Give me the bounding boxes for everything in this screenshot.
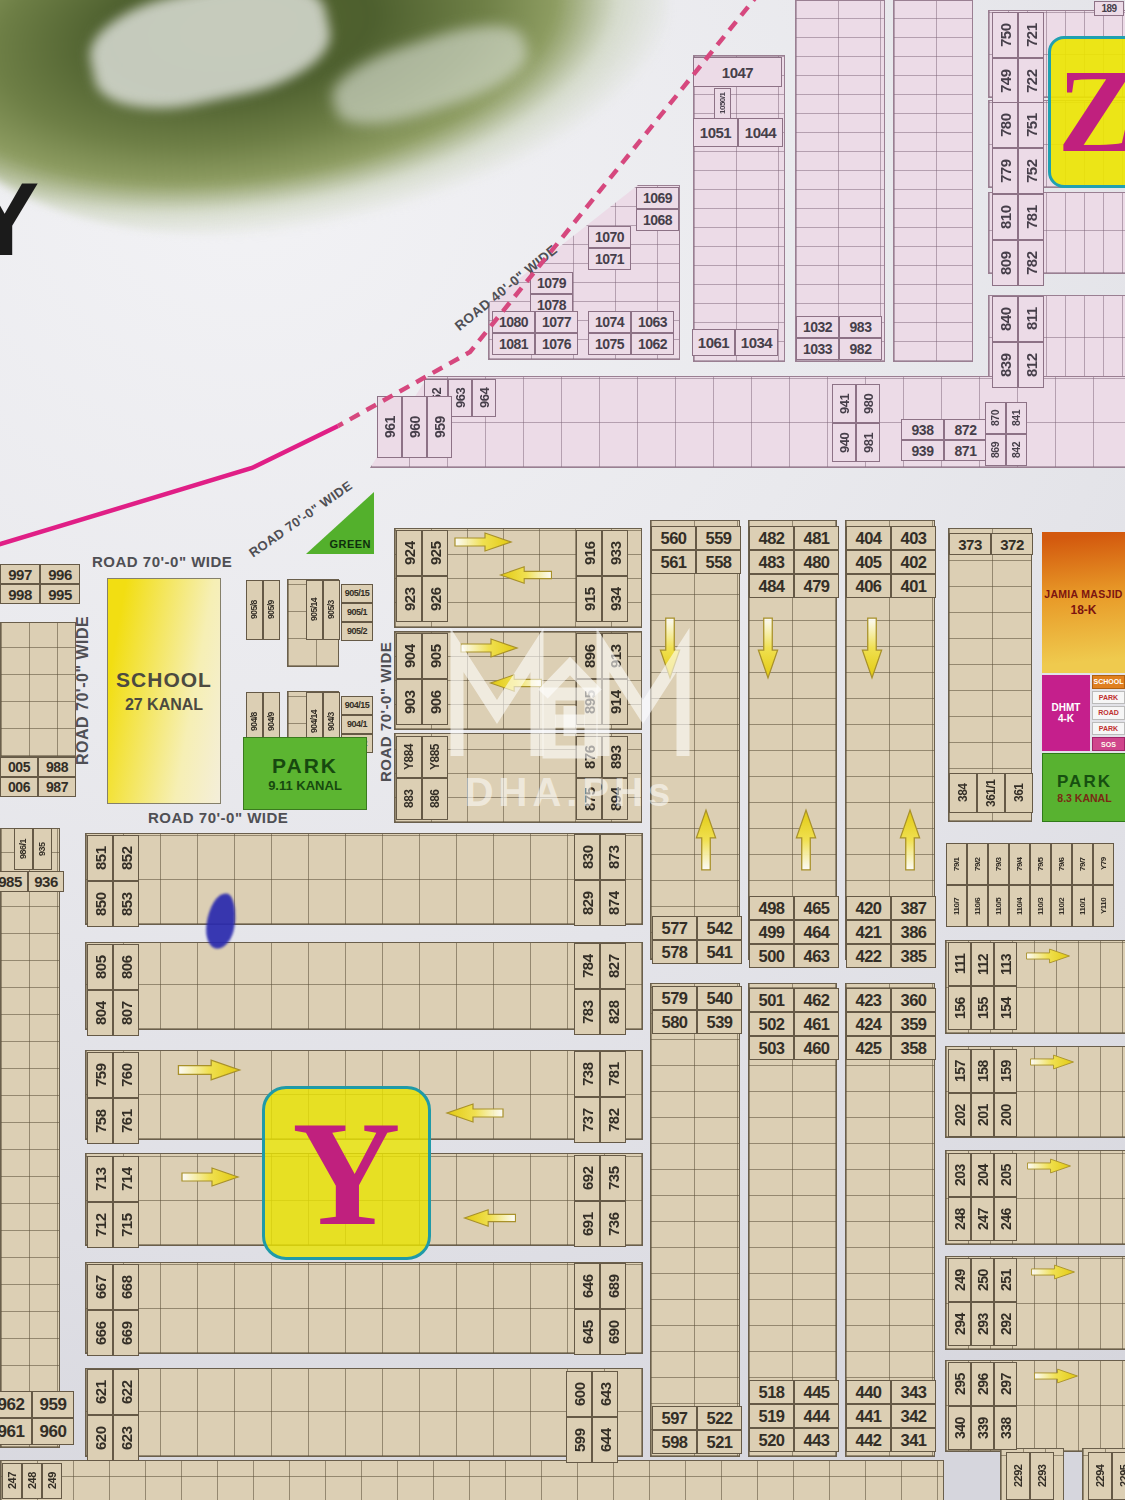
plot-group: 905/15905/1905/2: [341, 584, 373, 641]
plot-number: SOS: [1092, 737, 1125, 751]
plot-number: 841: [1006, 402, 1027, 434]
plot-number: 159: [994, 1049, 1017, 1093]
plot-number: 201: [971, 1093, 994, 1137]
plot-group: 420387421386422385: [846, 896, 936, 968]
plot-number: 112: [971, 942, 994, 986]
plot-number: 896: [576, 633, 602, 679]
plot-number: 372: [991, 533, 1033, 555]
plot-number: 828: [600, 989, 626, 1035]
plot-number: 810: [992, 194, 1018, 240]
plot-number: 751: [1018, 102, 1044, 148]
dhmt-size-label: 4-K: [1058, 713, 1074, 724]
plot-number: 752: [1018, 148, 1044, 194]
plot-group: 189: [1094, 1, 1124, 16]
plot-group: 780751779752: [992, 102, 1044, 194]
plot-number: 983: [839, 316, 882, 338]
plot-number: 296: [971, 1362, 994, 1406]
plot-number: 358: [891, 1036, 936, 1060]
plot-number: 750: [992, 12, 1018, 58]
plot-group: 916933915934: [576, 530, 628, 622]
plot-group: 905/14905/3: [306, 580, 340, 640]
plot-number: 842: [1006, 434, 1027, 466]
plot-number: 905/1: [341, 603, 373, 622]
plot-number: 294: [948, 1302, 971, 1346]
plot-number: 926: [422, 576, 448, 622]
plot-number: 905/8: [246, 580, 263, 640]
plot-number: 962: [0, 1391, 32, 1418]
plot-group: 784827783828: [574, 943, 626, 1035]
plot-group: 10701071: [588, 226, 631, 270]
plot-number: 341: [891, 1428, 936, 1452]
plot-number: 827: [600, 943, 626, 989]
plot-number: 422: [846, 944, 891, 968]
plot-number: 110/7: [946, 885, 967, 927]
plot-number: 420: [846, 896, 891, 920]
plot-group: 985936: [0, 871, 64, 892]
plot-number: 779: [992, 148, 1018, 194]
plot-number: 894: [602, 778, 628, 820]
plot-group: 10329831033982: [796, 316, 882, 360]
amenity-bars: SCHOOLPARKROADPARKSOS: [1092, 675, 1125, 751]
plot-number: 340: [948, 1406, 971, 1450]
plot-number: 964: [472, 379, 496, 417]
plot-number: 2293: [1030, 1452, 1054, 1500]
plot-number: 840: [992, 296, 1018, 342]
plot-number: 869: [985, 434, 1006, 466]
plot-number: 782: [600, 1097, 626, 1143]
dhmt-label: DHMT: [1052, 702, 1081, 713]
plot-number: 1034: [735, 329, 778, 356]
plot-group: 404403405402406401: [846, 526, 936, 598]
plot-group: 997996998995: [0, 564, 80, 604]
direction-arrow-icon: [794, 808, 818, 872]
plot-number: 111: [948, 942, 971, 986]
direction-arrow-icon: [1026, 1157, 1072, 1175]
plot-group: 840811839812: [992, 296, 1044, 388]
plot-number: 1080: [492, 311, 535, 333]
plot-number: 202: [948, 1093, 971, 1137]
plot-group: 005988006987: [0, 757, 76, 797]
plot-number: 667: [87, 1264, 113, 1310]
plot-grid: [85, 942, 643, 1030]
plot-number: 005: [0, 757, 38, 777]
plot-number: 934: [602, 576, 628, 622]
plot-number: 715: [113, 1202, 139, 1248]
plot-number: 599: [566, 1417, 592, 1463]
plot-number: 154: [994, 986, 1017, 1030]
plot-number: 935: [33, 828, 52, 870]
plot-number: 247: [971, 1197, 994, 1241]
direction-arrow-icon: [860, 616, 884, 680]
dha-plot-map: Y 1047 1050/1 10511044 10691068 10701071…: [0, 0, 1125, 1500]
plot-number: 905/2: [341, 622, 373, 641]
plot-number: 387: [891, 896, 936, 920]
plot-group: 805806804807: [87, 944, 139, 1036]
plot-group: 560559561558: [651, 526, 741, 574]
plot-number: 738: [574, 1051, 600, 1097]
plot-number: 423: [846, 988, 891, 1012]
plot-number: 924: [396, 530, 422, 576]
plot-number: 1047: [693, 57, 782, 87]
park-block: PARK 9.11 KANAL: [243, 737, 367, 810]
plot-number: SCHOOL: [1092, 675, 1125, 689]
plot-number: 578: [652, 940, 697, 964]
plot-number: 806: [113, 944, 139, 990]
plot-number: 539: [697, 1010, 742, 1034]
plot-number: 462: [794, 988, 839, 1012]
plot-number: Y884: [396, 736, 422, 778]
plot-number: 913: [602, 633, 628, 679]
plot-number: 1044: [738, 118, 783, 147]
plot-group: 498465499464500463: [749, 896, 839, 968]
plot-group: 111112113156155154: [948, 942, 1017, 1030]
plot-group: 621622620623: [87, 1369, 139, 1461]
direction-arrow-icon: [444, 1102, 506, 1124]
plot-number: 782: [1018, 240, 1044, 286]
plot-number: 906: [422, 679, 448, 725]
plot-number: 113: [994, 942, 1017, 986]
plot-group: 597522598521: [652, 1406, 742, 1454]
plot-number: Y79: [1093, 843, 1114, 885]
plot-number: 783: [574, 989, 600, 1035]
plot-number: 110/6: [967, 885, 988, 927]
plot-group: 157158159202201200: [948, 1049, 1017, 1137]
plot-number: 805: [87, 944, 113, 990]
plot-group: 22922293: [1006, 1452, 1054, 1500]
sector-y-marker: Y: [262, 1086, 431, 1260]
plot-number: 851: [87, 835, 113, 881]
plot-group: 600643599644: [566, 1371, 618, 1463]
plot-group: 759760758761: [87, 1052, 139, 1144]
plot-number: 110/4: [1009, 885, 1030, 927]
direction-arrow-icon: [458, 637, 520, 659]
plot-group: 961960959: [377, 396, 452, 458]
plot-number: Y885: [422, 736, 448, 778]
plot-number: 714: [113, 1156, 139, 1202]
plot-number: 440: [846, 1380, 891, 1404]
plot-number: 248: [22, 1463, 42, 1499]
plot-number: 247: [2, 1463, 22, 1499]
plot-number: 386: [891, 920, 936, 944]
plot-number: 250: [971, 1258, 994, 1302]
plot-number: 904/1: [341, 715, 373, 734]
plot-number: 959: [32, 1391, 74, 1418]
plot-number: ROAD: [1092, 706, 1125, 720]
plot-grid: [0, 828, 60, 1448]
plot-number: 961: [0, 1418, 32, 1445]
direction-arrow-icon: [756, 616, 780, 680]
plot-number: 749: [992, 58, 1018, 104]
plot-number: 839: [992, 342, 1018, 388]
plot-group: 577542578541: [652, 916, 742, 964]
plot-number: 482: [749, 526, 794, 550]
plot-number: 1033: [796, 338, 839, 360]
plot-number: 645: [574, 1309, 600, 1355]
plot-number: 1069: [636, 187, 679, 209]
plot-number: 579: [652, 986, 697, 1010]
plot-number: 110/5: [988, 885, 1009, 927]
plot-number: 561: [651, 550, 696, 574]
plot-number: 443: [794, 1428, 839, 1452]
plot-number: 712: [87, 1202, 113, 1248]
plot-number: 460: [794, 1036, 839, 1060]
plot-number: 758: [87, 1098, 113, 1144]
plot-number: 465: [794, 896, 839, 920]
plot-number: 597: [652, 1406, 697, 1430]
plot-group: 482481483480484479: [749, 526, 839, 598]
plot-number: 904: [396, 633, 422, 679]
plot-number: 870: [985, 402, 1006, 434]
plot-number: 1075: [588, 333, 631, 355]
plot-group: 1074106310751062: [588, 311, 674, 355]
plot-number: 982: [839, 338, 882, 360]
plot-number: 445: [794, 1380, 839, 1404]
plot-number: 483: [749, 550, 794, 574]
plot-group: 1047: [693, 57, 782, 87]
plot-number: 248: [948, 1197, 971, 1241]
plot-number: 804: [87, 990, 113, 1036]
plot-number: 444: [794, 1404, 839, 1428]
plot-number: 424: [846, 1012, 891, 1036]
plot-number: 157: [948, 1049, 971, 1093]
park-label: PARK: [272, 754, 338, 778]
plot-number: 359: [891, 1012, 936, 1036]
plot-number: 722: [1018, 58, 1044, 104]
plot-number: 622: [113, 1369, 139, 1415]
plot-number: 761: [113, 1098, 139, 1144]
plot-number: 985: [0, 871, 28, 892]
plot-number: 998: [0, 584, 40, 604]
plot-number: 501: [749, 988, 794, 1012]
plot-number: 1061: [692, 329, 735, 356]
park-size-label: 8.3 KANAL: [1057, 792, 1111, 804]
plot-number: 981: [856, 423, 880, 462]
plot-grid: [650, 520, 740, 960]
plot-number: 1032: [796, 316, 839, 338]
plot-number: 406: [846, 574, 891, 598]
plot-number: 914: [602, 679, 628, 725]
plot-number: 1063: [631, 311, 674, 333]
plot-number: 502: [749, 1012, 794, 1036]
plot-number: 689: [600, 1263, 626, 1309]
plot-group: 10611034: [692, 329, 778, 356]
plot-group: 876893875894: [576, 736, 628, 820]
plot-number: 905/3: [323, 580, 340, 640]
plot-number: 246: [994, 1197, 1017, 1241]
plot-group: 646689645690: [574, 1263, 626, 1355]
plot-number: 784: [574, 943, 600, 989]
plot-number: 988: [38, 757, 76, 777]
plot-number: 404: [846, 526, 891, 550]
plot-number: 905/9: [263, 580, 280, 640]
plot-number: 1071: [588, 248, 631, 270]
plot-number: 110/2: [1051, 885, 1072, 927]
plot-group: 938872939871: [901, 419, 987, 461]
plot-number: 110/1: [1072, 885, 1093, 927]
plot-number: 297: [994, 1362, 1017, 1406]
plot-number: 205: [994, 1153, 1017, 1197]
plot-grid: [795, 0, 885, 362]
plot-number: 480: [794, 550, 839, 574]
direction-arrow-icon: [658, 616, 682, 680]
plot-number: 361: [1005, 773, 1033, 813]
plot-number: 203: [948, 1153, 971, 1197]
plot-number: 519: [749, 1404, 794, 1428]
plot-number: 925: [422, 530, 448, 576]
plot-number: 361/1: [977, 773, 1005, 813]
plot-number: 780: [992, 102, 1018, 148]
school-label: SCHOOL: [116, 668, 212, 692]
plot-number: 580: [652, 1010, 697, 1034]
sector-z-marker: Z: [1048, 36, 1125, 188]
plot-group: 692735691736: [574, 1155, 626, 1247]
plot-number: 938: [901, 419, 944, 440]
plot-group: 22942295: [1088, 1452, 1125, 1500]
plot-number: 940: [832, 423, 856, 462]
plot-number: 809: [992, 240, 1018, 286]
plot-number: 521: [697, 1430, 742, 1454]
plot-number: 1070: [588, 226, 631, 248]
plot-number: 996: [40, 564, 80, 584]
plot-number: 735: [600, 1155, 626, 1201]
plot-number: 522: [697, 1406, 742, 1430]
plot-number: 936: [28, 871, 64, 892]
plot-group: 1050/1: [714, 88, 731, 119]
plot-number: 939: [901, 440, 944, 461]
plot-number: 79/6: [1051, 843, 1072, 885]
plot-number: 1081: [492, 333, 535, 355]
direction-arrow-icon: [898, 808, 922, 872]
plot-group: 384361/1361: [949, 773, 1033, 813]
plot-number: 200: [994, 1093, 1017, 1137]
plot-group: 924925923926: [396, 530, 448, 622]
plot-number: 542: [697, 916, 742, 940]
plot-number: 2294: [1088, 1452, 1112, 1500]
plot-number: 342: [891, 1404, 936, 1428]
plot-number: 425: [846, 1036, 891, 1060]
plot-number: 811: [1018, 296, 1044, 342]
plot-number: 189: [1094, 1, 1124, 16]
plot-number: 2292: [1006, 1452, 1030, 1500]
plot-number: 559: [696, 526, 741, 550]
plot-number: 598: [652, 1430, 697, 1454]
plot-number: 560: [651, 526, 696, 550]
plot-number: 905/14: [306, 580, 323, 640]
plot-grid: [85, 1368, 643, 1457]
park-label: PARK: [1057, 772, 1112, 792]
direction-arrow-icon: [497, 565, 555, 585]
plot-number: 442: [846, 1428, 891, 1452]
plot-group: 249250251294293292: [948, 1258, 1017, 1346]
plot-group: 905/8905/9: [246, 580, 280, 640]
plot-grid: [650, 983, 740, 1457]
plot-number: 401: [891, 574, 936, 598]
plot-number: 736: [600, 1201, 626, 1247]
plot-number: 558: [696, 550, 741, 574]
plot-number: 875: [576, 778, 602, 820]
plot-number: 759: [87, 1052, 113, 1098]
plot-number: 916: [576, 530, 602, 576]
plot-number: 961: [377, 396, 402, 458]
direction-arrow-icon: [1033, 1367, 1079, 1385]
plot-group: Y884Y885883886: [396, 736, 448, 820]
plot-number: 721: [1018, 12, 1044, 58]
plot-number: 1076: [535, 333, 578, 355]
plot-grid: [0, 622, 76, 757]
plot-group: 738781737782: [574, 1051, 626, 1143]
sector-letter: Z: [1058, 53, 1125, 171]
plot-number: 156: [948, 986, 971, 1030]
plot-number: 464: [794, 920, 839, 944]
plot-number: 850: [87, 881, 113, 927]
plot-number: 905: [422, 633, 448, 679]
school-block: SCHOOL 27 KANAL: [107, 578, 221, 804]
map-title-letter: Y: [0, 160, 39, 279]
plot-group: 579540580539: [652, 986, 742, 1034]
plot-number: 1062: [631, 333, 674, 355]
plot-number: 520: [749, 1428, 794, 1452]
plot-number: 620: [87, 1415, 113, 1461]
plot-group: 247248249: [2, 1463, 62, 1499]
plot-number: 807: [113, 990, 139, 1036]
plot-number: 781: [600, 1051, 626, 1097]
direction-arrow-icon: [460, 1208, 520, 1228]
plot-group: 1080107710811076: [492, 311, 578, 355]
plot-number: 461: [794, 1012, 839, 1036]
plot-number: 691: [574, 1201, 600, 1247]
plot-number: 293: [971, 1302, 994, 1346]
plot-number: 155: [971, 986, 994, 1030]
road-label: ROAD 70'-0" WIDE: [74, 616, 92, 765]
road-label: ROAD 70'-0" WIDE: [148, 809, 288, 826]
plot-number: 338: [994, 1406, 1017, 1450]
plot-number: 204: [971, 1153, 994, 1197]
plot-number: 499: [749, 920, 794, 944]
direction-arrow-icon: [178, 1166, 242, 1188]
plot-number: 463: [794, 944, 839, 968]
plot-number: 623: [113, 1415, 139, 1461]
plot-number: 873: [600, 834, 626, 880]
plot-number: 79/5: [1030, 843, 1051, 885]
plot-number: 690: [600, 1309, 626, 1355]
plot-number: 577: [652, 916, 697, 940]
plot-number: 540: [697, 986, 742, 1010]
plot-number: 812: [1018, 342, 1044, 388]
plot-number: 541: [697, 940, 742, 964]
masjid-label: JAMIA MASJID: [1044, 588, 1122, 600]
plot-number: 852: [113, 835, 139, 881]
plot-group: 518445519444520443: [749, 1380, 839, 1452]
plot-group: 295296297340339338: [948, 1362, 1017, 1450]
plot-number: 295: [948, 1362, 971, 1406]
plot-number: 441: [846, 1404, 891, 1428]
plot-group: 440343441342442341: [846, 1380, 936, 1452]
direction-arrow-icon: [486, 673, 546, 693]
plot-number: 2295: [1112, 1452, 1125, 1500]
plot-number: 853: [113, 881, 139, 927]
direction-arrow-icon: [1025, 947, 1071, 965]
plot-number: 110/3: [1030, 885, 1051, 927]
plot-number: 373: [949, 533, 991, 555]
plot-number: 905/15: [341, 584, 373, 603]
plot-grid: [893, 0, 973, 362]
plot-number: 643: [592, 1371, 618, 1417]
plot-group: 830873829874: [574, 834, 626, 926]
plot-grid: [693, 55, 785, 362]
plot-group: 962959961960: [0, 1391, 74, 1445]
plot-number: 893: [602, 736, 628, 778]
green-label: GREEN: [329, 538, 371, 550]
